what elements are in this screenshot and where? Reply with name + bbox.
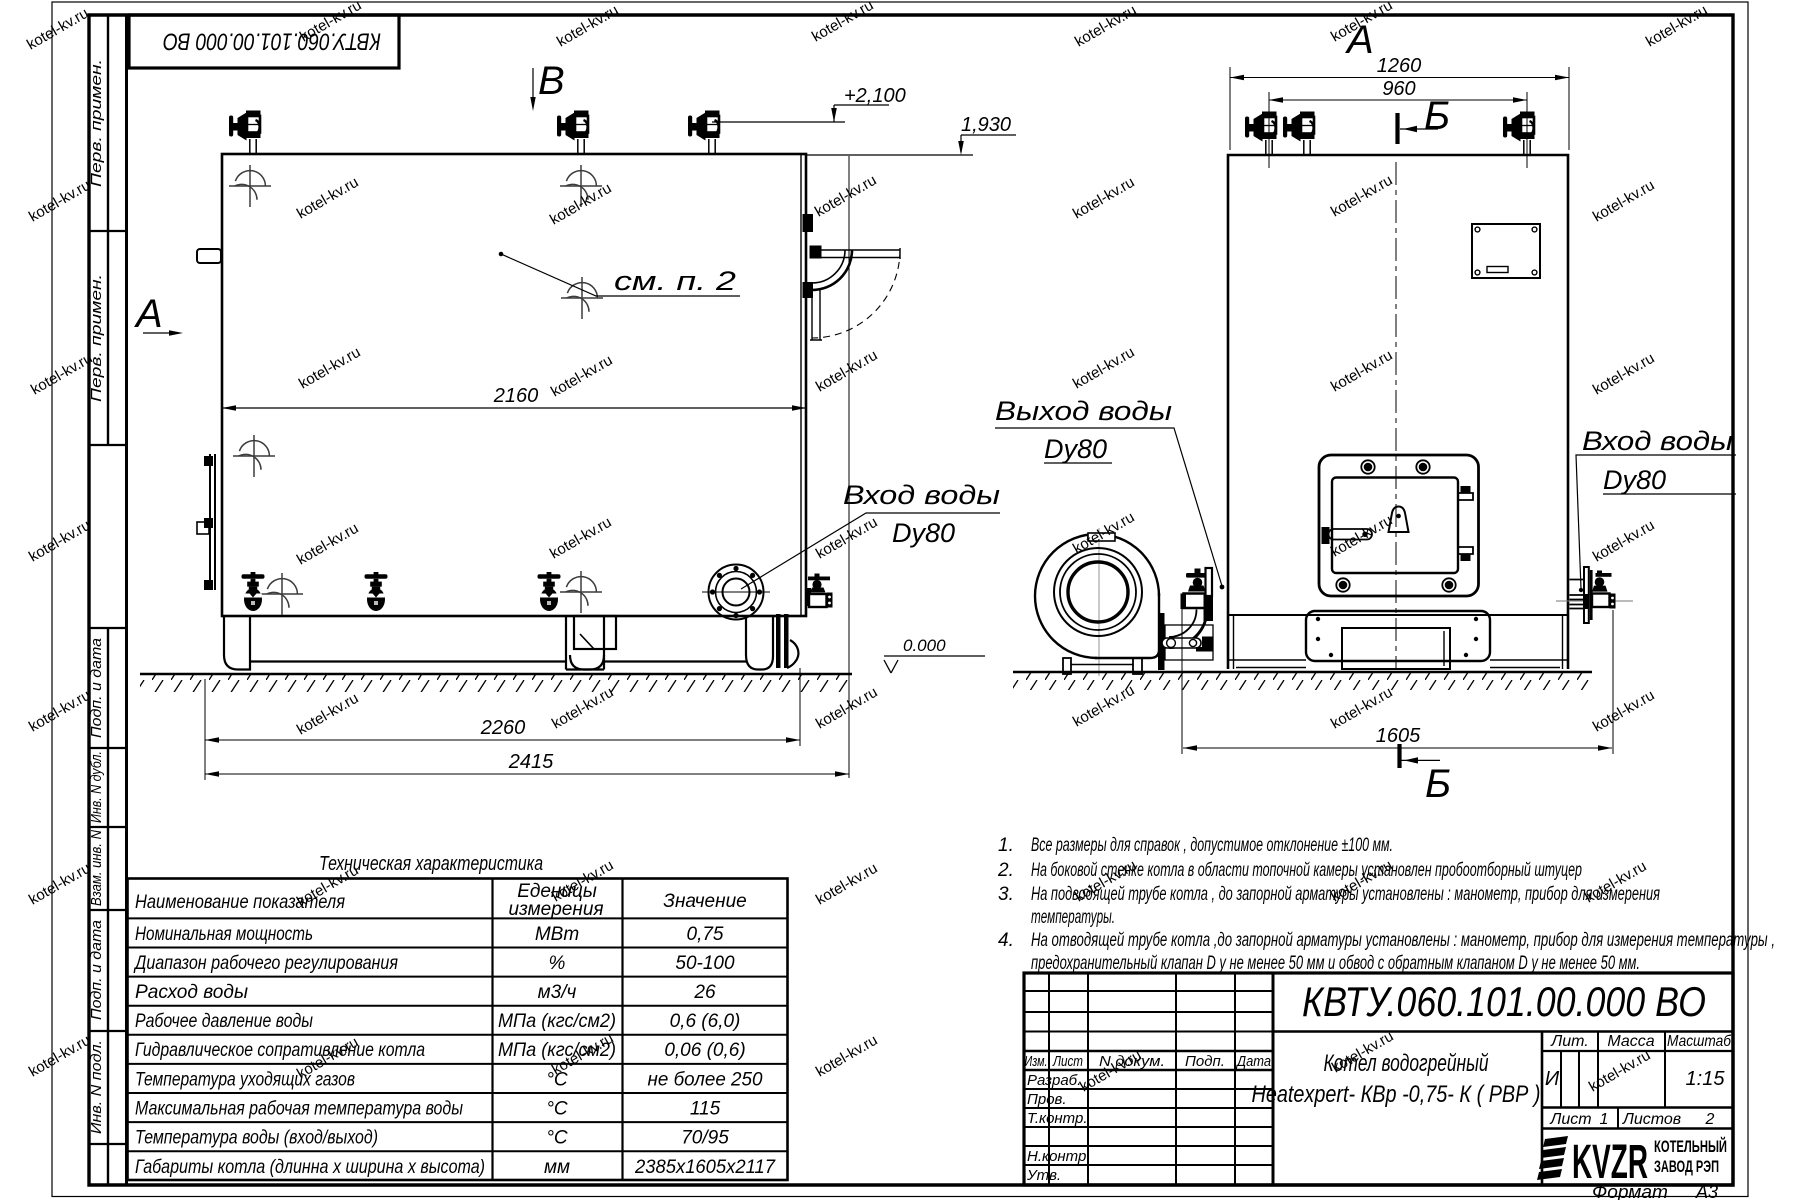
svg-text:70/95: 70/95: [681, 1128, 729, 1149]
svg-text:ЗАВОД РЭП: ЗАВОД РЭП: [1654, 1157, 1719, 1176]
svg-text:Рабочее давление воды: Рабочее давление воды: [135, 1011, 313, 1032]
svg-text:не более 250: не более 250: [648, 1070, 763, 1091]
svg-text:kotel-kv.ru: kotel-kv.ru: [1328, 172, 1395, 221]
svg-text:kotel-kv.ru: kotel-kv.ru: [1590, 687, 1657, 736]
svg-text:предохранительный клапан D у: предохранительный клапан D у не менее 50…: [1031, 953, 1640, 974]
svg-text:kotel-kv.ru: kotel-kv.ru: [294, 520, 361, 569]
svg-text:А: А: [134, 292, 163, 336]
svg-text:Перв. примен.: Перв. примен.: [88, 59, 105, 187]
svg-text:50-100: 50-100: [675, 953, 735, 974]
svg-text:kotel-kv.ru: kotel-kv.ru: [554, 2, 621, 51]
svg-text:1605: 1605: [1376, 725, 1421, 747]
svg-text:Формат: Формат: [1592, 1182, 1668, 1200]
svg-text:Гидравлическое сопративление к: Гидравлическое сопративление котла: [135, 1040, 425, 1061]
svg-text:Heatexpert- КВр -0,75- К ( РВР: Heatexpert- КВр -0,75- К ( РВР ): [1252, 1081, 1541, 1108]
svg-text:kotel-kv.ru: kotel-kv.ru: [1072, 2, 1139, 51]
svg-text:kotel-kv.ru: kotel-kv.ru: [1590, 177, 1657, 226]
svg-text:Dy80: Dy80: [1603, 465, 1666, 495]
svg-text:kotel-kv.ru: kotel-kv.ru: [547, 514, 614, 563]
svg-text:kotel-kv.ru: kotel-kv.ru: [812, 172, 879, 221]
svg-text:А3: А3: [1695, 1182, 1718, 1200]
svg-text:kotel-kv.ru: kotel-kv.ru: [813, 1032, 880, 1081]
svg-text:Габариты котла (длинна х ширин: Габариты котла (длинна х ширина х высота…: [135, 1157, 485, 1178]
svg-text:Дата: Дата: [1235, 1053, 1271, 1070]
svg-text:Масса: Масса: [1607, 1033, 1654, 1050]
svg-text:И: И: [1545, 1068, 1560, 1090]
svg-text:Лист: Лист: [1052, 1053, 1083, 1070]
svg-text:Температура уходящих газов: Температура уходящих газов: [135, 1070, 355, 1091]
svg-text:kotel-kv.ru: kotel-kv.ru: [813, 860, 880, 909]
svg-text:kotel-kv.ru: kotel-kv.ru: [548, 352, 615, 401]
svg-text:2160: 2160: [493, 385, 539, 407]
svg-text:Номинальная мощность: Номинальная мощность: [135, 924, 313, 945]
svg-text:0,06 (0,6): 0,06 (0,6): [664, 1040, 745, 1061]
svg-text:Лист: Лист: [1549, 1111, 1591, 1128]
svg-text:2415: 2415: [508, 751, 554, 773]
svg-text:1: 1: [1600, 1111, 1609, 1128]
svg-text:На отводящей трубе котла ,до з: На отводящей трубе котла ,до запорной ар…: [1031, 930, 1775, 951]
svg-text:kotel-kv.ru: kotel-kv.ru: [26, 517, 93, 566]
svg-text:Разраб.: Разраб.: [1027, 1072, 1081, 1089]
svg-text:Подп. и дата: Подп. и дата: [88, 638, 105, 738]
svg-text:kotel-kv.ru: kotel-kv.ru: [1590, 517, 1657, 566]
svg-text:kotel-kv.ru: kotel-kv.ru: [1590, 350, 1657, 399]
svg-text:kotel-kv.ru: kotel-kv.ru: [1328, 512, 1395, 561]
svg-text:kotel-kv.ru: kotel-kv.ru: [26, 687, 93, 736]
svg-text:Dy80: Dy80: [1044, 434, 1107, 464]
svg-text:°С: °С: [546, 1099, 568, 1120]
svg-text:Лит.: Лит.: [1550, 1033, 1588, 1050]
svg-text:0.000: 0.000: [903, 636, 946, 655]
svg-text:4.: 4.: [998, 930, 1014, 951]
svg-text:0,6 (6,0): 0,6 (6,0): [670, 1011, 741, 1032]
svg-text:kotel-kv.ru: kotel-kv.ru: [296, 344, 363, 393]
svg-text:1.: 1.: [998, 835, 1014, 856]
svg-text:Перв. примен.: Перв. примен.: [88, 274, 105, 402]
svg-text:температуры.: температуры.: [1031, 907, 1115, 928]
svg-text:kotel-kv.ru: kotel-kv.ru: [294, 174, 361, 223]
svg-text:Н.контр.: Н.контр.: [1027, 1148, 1091, 1165]
svg-text:2385х1605х2117: 2385х1605х2117: [634, 1157, 776, 1178]
svg-text:Подп. и дата: Подп. и дата: [88, 920, 105, 1020]
svg-text:Инв. N дубл.: Инв. N дубл.: [88, 751, 105, 823]
svg-text:Пров.: Пров.: [1027, 1091, 1067, 1108]
svg-text:%: %: [549, 953, 566, 974]
svg-text:3.: 3.: [998, 884, 1014, 905]
svg-text:kotel-kv.ru: kotel-kv.ru: [813, 514, 880, 563]
svg-text:Взам. инв. N: Взам. инв. N: [88, 830, 105, 906]
svg-text:КВТУ.060.101.00.000 ВО: КВТУ.060.101.00.000 ВО: [1302, 978, 1706, 1025]
svg-text:kotel-kv.ru: kotel-kv.ru: [1070, 344, 1137, 393]
svg-text:Вход воды: Вход воды: [1582, 426, 1733, 456]
svg-text:Температура воды (вход/выход): Температура воды (вход/выход): [135, 1128, 378, 1149]
svg-text:Б: Б: [1424, 94, 1450, 138]
svg-text:МВт: МВт: [535, 924, 579, 945]
svg-text:МПа (кгс/см2): МПа (кгс/см2): [498, 1011, 616, 1032]
svg-text:kotel-kv.ru: kotel-kv.ru: [1643, 2, 1710, 51]
svg-text:°С: °С: [546, 1128, 568, 1149]
svg-text:Максимальная рабочая температу: Максимальная рабочая температура воды: [135, 1099, 463, 1120]
svg-text:Утв.: Утв.: [1026, 1167, 1061, 1184]
svg-text:960: 960: [1382, 78, 1415, 100]
svg-text:Значение: Значение: [663, 891, 746, 912]
svg-text:kotel-kv.ru: kotel-kv.ru: [1328, 347, 1395, 396]
svg-text:1260: 1260: [1377, 55, 1422, 77]
svg-text:2.: 2.: [997, 860, 1014, 881]
svg-text:Вход воды: Вход воды: [843, 480, 1000, 510]
svg-text:см. п. 2: см. п. 2: [614, 266, 736, 296]
svg-text:КВТУ.060.101.00.000 ВО: КВТУ.060.101.00.000 ВО: [163, 28, 381, 55]
svg-text:Dy80: Dy80: [892, 518, 955, 548]
svg-text:Выход воды: Выход воды: [995, 396, 1172, 426]
svg-text:kotel-kv.ru: kotel-kv.ru: [26, 177, 93, 226]
svg-text:0,75: 0,75: [687, 924, 724, 945]
svg-text:Листов: Листов: [1622, 1111, 1681, 1128]
svg-text:kotel-kv.ru: kotel-kv.ru: [294, 690, 361, 739]
svg-text:2: 2: [1705, 1111, 1715, 1128]
svg-text:115: 115: [690, 1099, 721, 1120]
svg-text:kotel-kv.ru: kotel-kv.ru: [1586, 1047, 1653, 1096]
svg-text:kotel-kv.ru: kotel-kv.ru: [1070, 509, 1137, 558]
svg-text:kotel-kv.ru: kotel-kv.ru: [26, 860, 93, 909]
svg-text:Изм.: Изм.: [1025, 1053, 1048, 1070]
svg-text:+2,100: +2,100: [844, 85, 906, 107]
svg-text:kotel-kv.ru: kotel-kv.ru: [26, 1032, 93, 1081]
svg-text:Все размеры для справок , допу: Все размеры для справок , допустимое отк…: [1031, 835, 1393, 856]
svg-text:kotel-kv.ru: kotel-kv.ru: [809, 0, 876, 45]
svg-text:1:15: 1:15: [1686, 1068, 1726, 1090]
svg-text:Масштаб: Масштаб: [1667, 1033, 1732, 1050]
svg-text:м3/ч: м3/ч: [538, 982, 577, 1003]
svg-text:Диапазон рабочего регулировани: Диапазон рабочего регулирования: [133, 953, 398, 974]
svg-text:kotel-kv.ru: kotel-kv.ru: [24, 5, 91, 54]
svg-text:2260: 2260: [480, 717, 526, 739]
svg-text:Т.контр.: Т.контр.: [1027, 1110, 1088, 1127]
svg-text:26: 26: [693, 982, 716, 1003]
svg-text:Подп.: Подп.: [1185, 1053, 1225, 1070]
svg-text:мм: мм: [544, 1157, 570, 1178]
svg-text:1,930: 1,930: [961, 114, 1011, 136]
svg-text:Расход воды: Расход воды: [135, 982, 248, 1003]
svg-text:КОТЕЛЬНЫЙ: КОТЕЛЬНЫЙ: [1654, 1137, 1727, 1156]
svg-text:Инв. N подл.: Инв. N подл.: [88, 1040, 105, 1134]
svg-text:В: В: [538, 59, 565, 103]
svg-text:kotel-kv.ru: kotel-kv.ru: [1070, 174, 1137, 223]
svg-text:kotel-kv.ru: kotel-kv.ru: [813, 347, 880, 396]
svg-text:kotel-kv.ru: kotel-kv.ru: [28, 350, 95, 399]
svg-text:Б: Б: [1425, 762, 1451, 806]
